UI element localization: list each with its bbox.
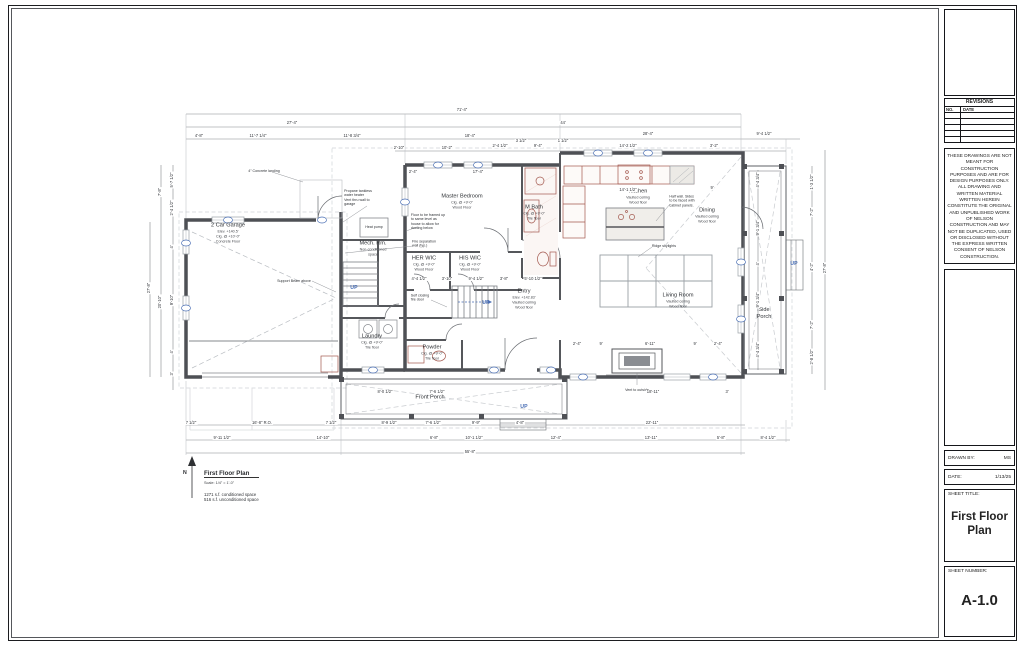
revisions-col-no: NO.: [945, 107, 961, 112]
fireplace: [606, 349, 668, 375]
revisions-title: REVISIONS: [945, 99, 1014, 107]
revisions-table: REVISIONS NO. DATE: [944, 98, 1015, 143]
sheet-number-box: SHEET NUMBER: A-1.0: [944, 566, 1015, 637]
sheet-title: First Floor Plan: [945, 511, 1014, 539]
logo-box: [944, 9, 1015, 96]
drawn-by-label: DRAWN BY:: [948, 456, 975, 461]
disclaimer-box: THESE DRAWINGS ARE NOT MEANT FOR CONSTRU…: [944, 148, 1015, 264]
front-porch-posts: [339, 377, 567, 419]
unconditioned-area: 516 s.f. unconditioned space: [204, 497, 334, 502]
door-window-tags: [182, 150, 746, 380]
floor-plan-drawing: [0, 0, 1024, 646]
north-arrow-icon: [188, 456, 196, 498]
windows: [183, 150, 744, 380]
date-label: DATE:: [948, 475, 962, 480]
kitchen-island: [606, 208, 664, 240]
blank-box: [944, 269, 1015, 446]
drawn-by-row: DRAWN BY: MS: [944, 450, 1015, 466]
plan-title-block: First Floor Plan Scale: 1/4" = 1'-0" 127…: [204, 462, 334, 502]
disclaimer-text: THESE DRAWINGS ARE NOT MEANT FOR CONSTRU…: [945, 149, 1014, 264]
driveway-lines: [190, 388, 334, 430]
skylight-grid: [600, 255, 712, 307]
laundry-appliances: [359, 320, 397, 338]
roof-overhang-dashed-lines: [179, 148, 792, 428]
revisions-empty-row: [945, 137, 1014, 143]
date-value: 1/13/25: [995, 475, 1011, 480]
front-porch: [341, 379, 567, 430]
drawn-by-value: MS: [1004, 456, 1011, 461]
plan-title: First Floor Plan: [204, 470, 259, 478]
walls-exterior: [186, 153, 743, 377]
date-row: DATE: 1/13/25: [944, 469, 1015, 485]
plan-scale: Scale: 1/4" = 1'-0": [204, 481, 334, 485]
sheet-number-label: SHEET NUMBER:: [945, 567, 1014, 574]
side-porch-posts: [742, 164, 784, 374]
revisions-col-date: DATE: [961, 107, 1014, 112]
garage-details: [189, 180, 388, 377]
sheet-title-label: SHEET TITLE:: [945, 490, 1014, 497]
sheet-title-box: SHEET TITLE: First Floor Plan: [944, 489, 1015, 562]
side-porch: [744, 166, 803, 374]
north-label: N: [183, 470, 187, 476]
sheet-number: A-1.0: [945, 592, 1014, 609]
